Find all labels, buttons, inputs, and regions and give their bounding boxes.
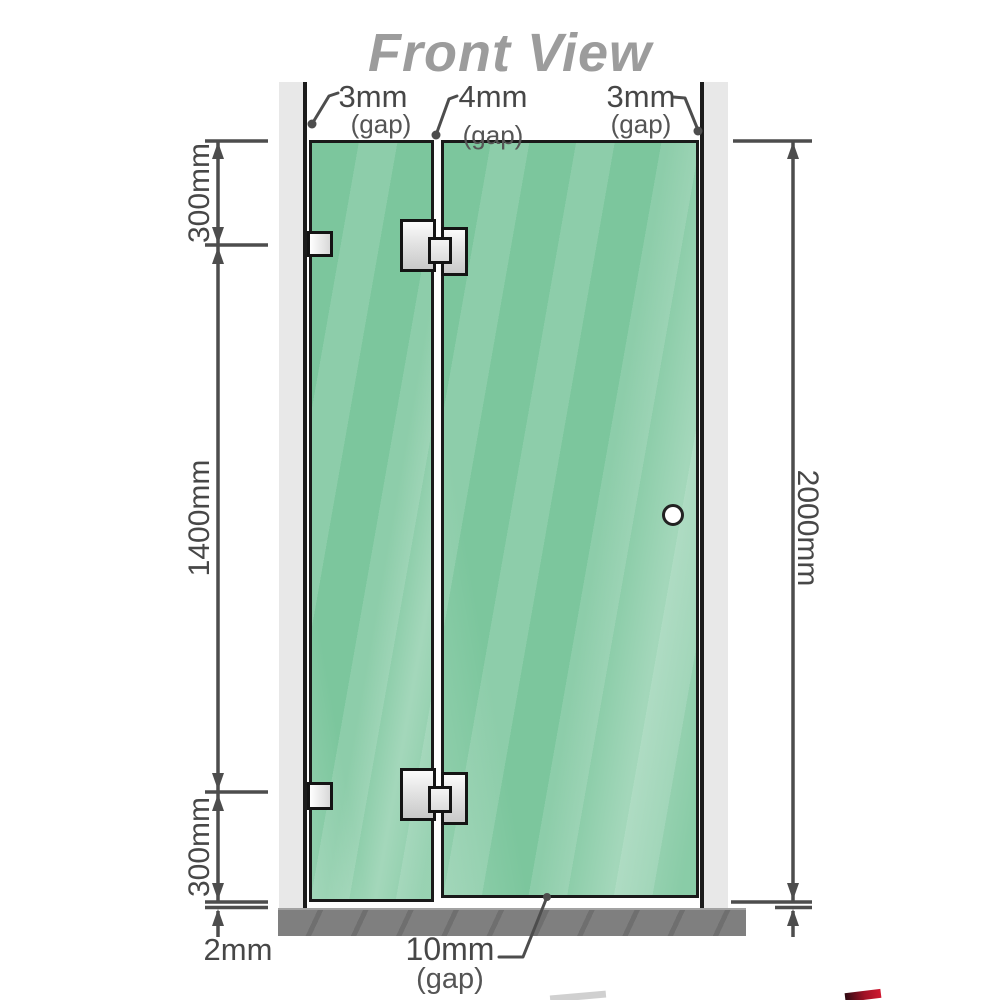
- dimension-left-middle-1400mm: 1400mm: [185, 453, 215, 583]
- gap-callout-right: 3mm (gap): [593, 81, 689, 137]
- page-title: Front View: [310, 22, 710, 84]
- gap-middle-qualifier: (gap): [445, 122, 541, 148]
- floor-bar: [278, 908, 746, 936]
- door-knob: [662, 504, 684, 526]
- right-wall-channel: [700, 82, 728, 908]
- gap-callout-left: 3mm (gap): [325, 81, 421, 137]
- front-view-diagram: Front View: [0, 0, 1000, 1000]
- bottom-hinge-knuckle: [428, 786, 452, 813]
- gap-middle-value: 4mm: [445, 81, 541, 112]
- gap-callout-bottom: 10mm (gap): [402, 933, 498, 994]
- door-glass-panel: [441, 140, 699, 898]
- dimension-left-bottom-300mm: 300mm: [185, 792, 215, 902]
- gap-right-value: 3mm: [593, 81, 689, 112]
- gap-left-qualifier: (gap): [341, 111, 421, 137]
- gap-bottom-qualifier: (gap): [402, 965, 498, 994]
- gap-left-value: 3mm: [325, 81, 421, 112]
- top-wall-bracket: [307, 231, 333, 257]
- watermark-red-fragment: [845, 989, 882, 1000]
- dimension-left-top-300mm: 300mm: [185, 138, 215, 248]
- bottom-wall-bracket: [307, 782, 333, 810]
- dimension-right-2000mm: 2000mm: [792, 458, 822, 598]
- gap-bottom-value: 10mm: [402, 933, 498, 965]
- top-hinge-knuckle: [428, 237, 452, 264]
- gap-right-qualifier: (gap): [593, 111, 689, 137]
- dimension-floor-2mm: 2mm: [193, 932, 283, 968]
- gap-callout-middle: 4mm (gap): [445, 81, 541, 148]
- left-wall-channel: [279, 82, 307, 908]
- watermark-gray-fragment: [550, 991, 606, 1000]
